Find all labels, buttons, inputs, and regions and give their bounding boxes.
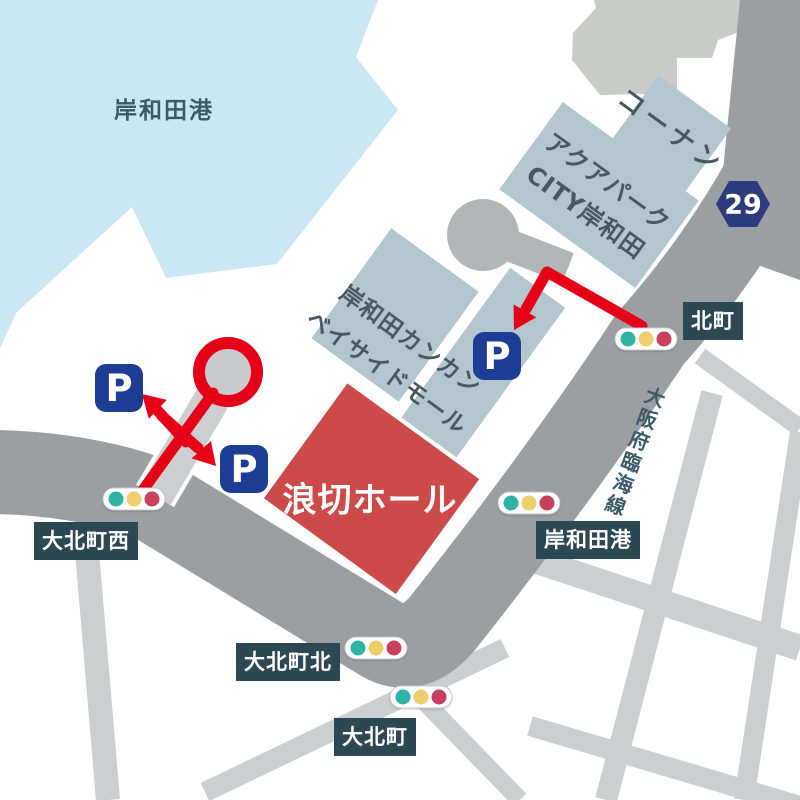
building-label-hall: 浪切ホール <box>283 473 458 522</box>
intersection-label-kishiwadako: 岸和田港 <box>536 521 640 559</box>
signal-teal-light <box>109 492 124 507</box>
traffic-light-okitacho-nishi <box>103 488 166 511</box>
intersection-label-kitamachi: 北町 <box>683 302 743 340</box>
intersection-label-okitacho-kita: 大北町北 <box>236 643 340 681</box>
signal-red-light <box>387 641 402 656</box>
parking-icon-west: P <box>95 364 143 412</box>
intersection-label-okitacho: 大北町 <box>334 718 416 756</box>
signal-teal-light <box>396 690 411 705</box>
signal-teal-light <box>351 641 366 656</box>
traffic-light-okitacho <box>390 686 453 709</box>
traffic-light-okitacho-kita <box>345 637 408 660</box>
signal-red-light <box>432 690 447 705</box>
signal-yellow-light <box>414 690 429 705</box>
label-overlay: 岸和田港 コーナン アクアパーク CITY岸和田 岸和田カンカン ベイサイドモー… <box>0 0 800 800</box>
access-map: 岸和田港 コーナン アクアパーク CITY岸和田 岸和田カンカン ベイサイドモー… <box>0 0 800 800</box>
signal-yellow-light <box>369 641 384 656</box>
signal-yellow-light <box>639 332 654 347</box>
parking-icon-center: P <box>220 445 268 493</box>
building-label-aquapark: アクアパーク CITY岸和田 <box>514 124 678 271</box>
signal-red-light <box>145 492 160 507</box>
building-label-mall: 岸和田カンカン ベイサイドモール <box>297 268 500 446</box>
route-badge-number: 29 <box>724 190 762 221</box>
signal-red-light <box>540 496 555 511</box>
traffic-light-kitamachi <box>615 328 678 351</box>
road-name-label: 大阪府臨海線 <box>597 382 671 522</box>
building-label-kohnan: コーナン <box>611 79 733 182</box>
signal-teal-light <box>504 496 519 511</box>
parking-icon-mall: P <box>473 332 521 380</box>
traffic-light-kishiwadako <box>498 492 561 515</box>
signal-red-light <box>657 332 672 347</box>
signal-yellow-light <box>522 496 537 511</box>
signal-teal-light <box>621 332 636 347</box>
harbor-label: 岸和田港 <box>114 91 214 125</box>
signal-yellow-light <box>127 492 142 507</box>
intersection-label-okitacho-nishi: 大北町西 <box>34 522 138 560</box>
